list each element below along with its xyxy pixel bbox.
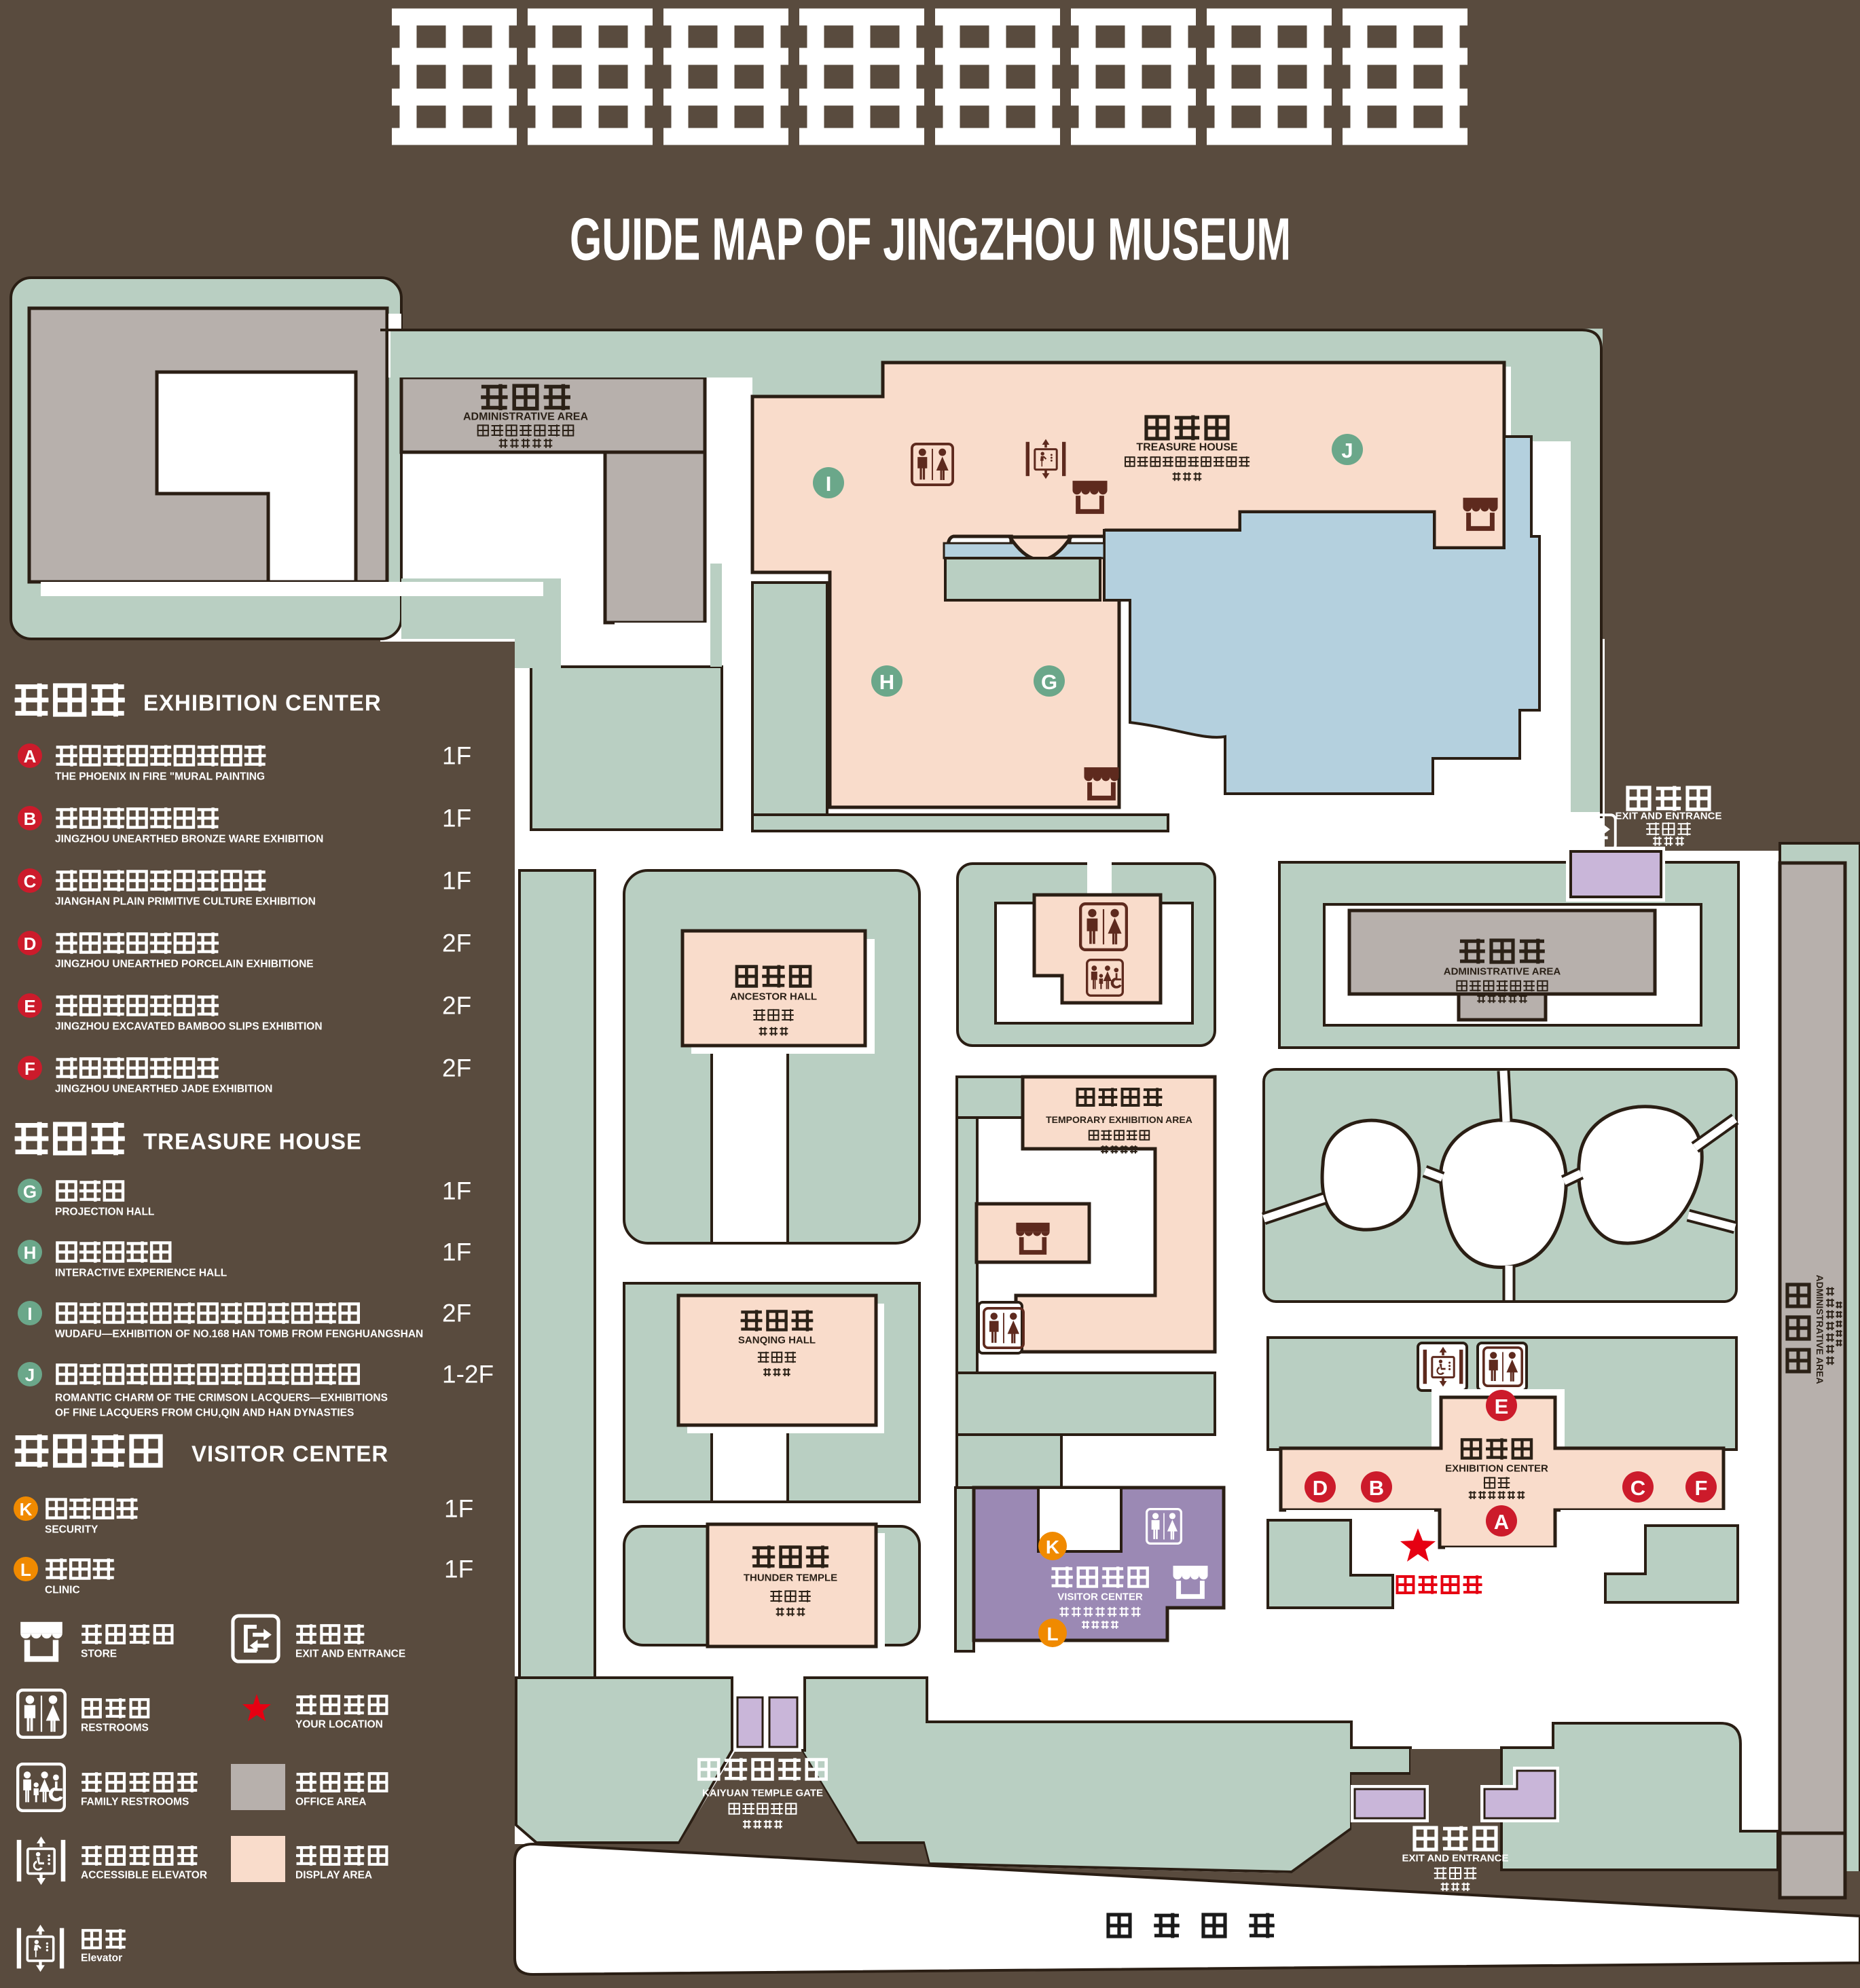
svg-text:GUIDE MAP OF JINGZHOU MUSEUM: GUIDE MAP OF JINGZHOU MUSEUM: [570, 206, 1291, 273]
svg-text:C: C: [24, 871, 37, 891]
svg-text:JINGZHOU EXCAVATED BAMBOO SLIP: JINGZHOU EXCAVATED BAMBOO SLIPS EXHIBITI…: [55, 1021, 323, 1033]
svg-text:EXIT AND ENTRANCE: EXIT AND ENTRANCE: [1402, 1853, 1509, 1864]
svg-text:TREASURE HOUSE: TREASURE HOUSE: [143, 1129, 362, 1154]
svg-text:L: L: [20, 1560, 31, 1580]
svg-text:PROJECTION HALL: PROJECTION HALL: [55, 1207, 154, 1218]
svg-text:G: G: [23, 1181, 37, 1202]
svg-text:EXHIBITION CENTER: EXHIBITION CENTER: [1445, 1463, 1548, 1475]
svg-text:STORE: STORE: [81, 1649, 117, 1660]
svg-text:2F: 2F: [442, 929, 471, 957]
svg-text:B: B: [24, 809, 37, 829]
svg-text:D: D: [1313, 1476, 1328, 1500]
svg-text:1F: 1F: [442, 805, 471, 832]
svg-text:KAIYUAN TEMPLE GATE: KAIYUAN TEMPLE GATE: [702, 1788, 823, 1799]
svg-text:JIANGHAN PLAIN PRIMITIVE CULTU: JIANGHAN PLAIN PRIMITIVE CULTURE EXHIBIT…: [55, 896, 316, 908]
svg-text:B: B: [1369, 1476, 1384, 1500]
svg-text:1F: 1F: [442, 1238, 471, 1266]
svg-text:1-2F: 1-2F: [442, 1361, 494, 1388]
svg-text:1F: 1F: [442, 867, 471, 895]
svg-text:WUDAFU—EXHIBITION OF NO.168 HA: WUDAFU—EXHIBITION OF NO.168 HAN TOMB FRO…: [55, 1329, 423, 1340]
svg-text:ACCESSIBLE ELEVATOR: ACCESSIBLE ELEVATOR: [81, 1870, 207, 1881]
svg-text:TEMPORARY EXHIBITION AREA: TEMPORARY EXHIBITION AREA: [1046, 1114, 1192, 1125]
svg-text:JINGZHOU UNEARTHED PORCELAIN E: JINGZHOU UNEARTHED PORCELAIN EXHIBITIONE: [55, 959, 314, 970]
svg-text:2F: 2F: [442, 992, 471, 1020]
svg-text:SECURITY: SECURITY: [45, 1524, 98, 1536]
svg-text:F: F: [24, 1059, 35, 1079]
svg-text:H: H: [24, 1242, 37, 1263]
svg-text:JINGZHOU UNEARTHED BRONZE WARE: JINGZHOU UNEARTHED BRONZE WARE EXHIBITIO…: [55, 834, 323, 845]
svg-text:CLINIC: CLINIC: [45, 1585, 80, 1596]
svg-text:G: G: [1041, 670, 1057, 694]
svg-text:1F: 1F: [442, 742, 471, 770]
svg-text:L: L: [1046, 1623, 1058, 1644]
svg-text:VISITOR CENTER: VISITOR CENTER: [1057, 1591, 1143, 1603]
svg-text:ROMANTIC CHARM OF THE CRIMSON: ROMANTIC CHARM OF THE CRIMSON LACQUERS—E…: [55, 1393, 388, 1404]
svg-text:D: D: [24, 934, 37, 954]
svg-text:2F: 2F: [442, 1054, 471, 1082]
svg-text:EXIT AND ENTRANCE: EXIT AND ENTRANCE: [295, 1649, 405, 1660]
svg-text:A: A: [24, 746, 37, 767]
svg-text:1F: 1F: [442, 1177, 471, 1205]
svg-text:E: E: [1495, 1395, 1509, 1418]
svg-text:A: A: [1494, 1510, 1509, 1534]
svg-text:EXHIBITION CENTER: EXHIBITION CENTER: [143, 691, 382, 716]
svg-text:C: C: [1630, 1476, 1645, 1500]
svg-text:SANQING HALL: SANQING HALL: [738, 1335, 816, 1346]
svg-text:2F: 2F: [442, 1300, 471, 1327]
svg-text:EXIT AND ENTRANCE: EXIT AND ENTRANCE: [1616, 811, 1722, 822]
svg-text:1F: 1F: [444, 1556, 473, 1583]
svg-text:I: I: [826, 472, 832, 496]
svg-text:DISPLAY AREA: DISPLAY AREA: [295, 1870, 372, 1881]
svg-text:I: I: [27, 1304, 32, 1324]
svg-text:INTERACTIVE EXPERIENCE HALL: INTERACTIVE EXPERIENCE HALL: [55, 1268, 227, 1279]
svg-text:J: J: [25, 1365, 35, 1385]
svg-text:1F: 1F: [444, 1495, 473, 1523]
svg-text:VISITOR CENTER: VISITOR CENTER: [192, 1441, 388, 1467]
svg-text:ADMINISTRATIVE AREA: ADMINISTRATIVE AREA: [463, 411, 588, 423]
svg-text:ANCESTOR HALL: ANCESTOR HALL: [730, 991, 817, 1003]
svg-text:F: F: [1695, 1476, 1708, 1500]
svg-text:Elevator: Elevator: [81, 1953, 122, 1964]
svg-text:ADMINISTRATIVE AREA: ADMINISTRATIVE AREA: [1444, 966, 1561, 978]
svg-text:K: K: [20, 1499, 33, 1520]
svg-text:K: K: [1046, 1536, 1059, 1558]
svg-text:H: H: [879, 670, 894, 694]
svg-text:JINGZHOU UNEARTHED JADE EXHIBI: JINGZHOU UNEARTHED JADE EXHIBITION: [55, 1084, 272, 1095]
svg-text:THE PHOENIX IN FIRE "MURAL PAI: THE PHOENIX IN FIRE "MURAL PAINTING: [55, 771, 265, 783]
svg-text:OFFICE AREA: OFFICE AREA: [295, 1797, 366, 1808]
svg-text:ADMINISTRATIVE AREA: ADMINISTRATIVE AREA: [1815, 1275, 1825, 1384]
svg-text:OF FINE LACQUERS FROM CHU,QIN: OF FINE LACQUERS FROM CHU,QIN AND HAN DY…: [55, 1407, 354, 1419]
svg-text:TREASURE HOUSE: TREASURE HOUSE: [1136, 442, 1238, 454]
svg-text:E: E: [24, 996, 35, 1016]
svg-text:RESTROOMS: RESTROOMS: [81, 1723, 149, 1734]
svg-text:YOUR LOCATION: YOUR LOCATION: [295, 1719, 383, 1731]
svg-text:FAMILY RESTROOMS: FAMILY RESTROOMS: [81, 1797, 189, 1808]
svg-text:J: J: [1341, 439, 1353, 462]
svg-text:THUNDER TEMPLE: THUNDER TEMPLE: [744, 1572, 837, 1584]
